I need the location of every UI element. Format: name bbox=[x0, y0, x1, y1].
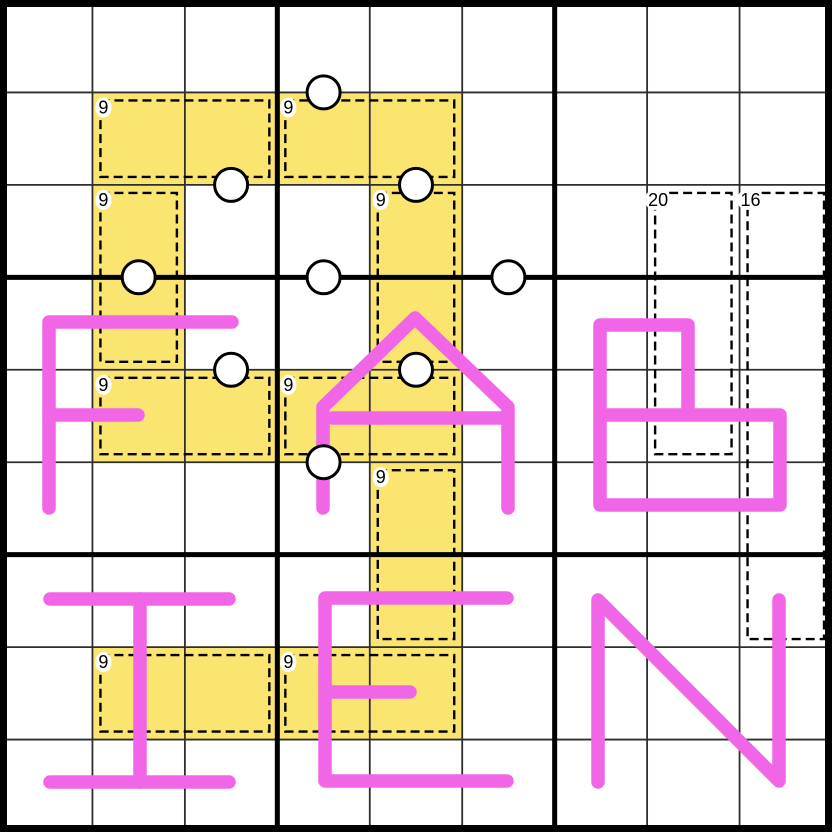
cage-sum-label: 9 bbox=[98, 97, 108, 117]
puzzle-board[interactable]: 9999999992016 bbox=[0, 0, 832, 832]
white-dot-r4c5-r5c5 bbox=[400, 353, 433, 386]
white-dot-r2c3-r3c3 bbox=[215, 168, 248, 201]
white-dot-r1c4-r2c4 bbox=[307, 76, 340, 109]
cell-r8c3[interactable] bbox=[185, 647, 277, 739]
cage-sum-label: 20 bbox=[648, 190, 668, 210]
cage-sum-label: 9 bbox=[98, 190, 108, 210]
white-dot-r3c4-r4c4 bbox=[307, 261, 340, 294]
cage-sum-label: 16 bbox=[741, 190, 761, 210]
puzzle-page: 9999999992016 bbox=[0, 0, 832, 832]
white-dot-r4c3-r5c3 bbox=[215, 353, 248, 386]
cage-sum-label: 9 bbox=[283, 97, 293, 117]
cage-sum-label: 9 bbox=[283, 652, 293, 672]
white-dot-r3c6-r4c6 bbox=[492, 261, 525, 294]
cage-sum-label: 9 bbox=[376, 467, 386, 487]
cage-sum-label: 9 bbox=[98, 375, 108, 395]
cage-sum-label: 9 bbox=[283, 375, 293, 395]
cage-sum-label: 9 bbox=[376, 190, 386, 210]
white-dot-r2c5-r3c5 bbox=[400, 168, 433, 201]
white-dot-r3c2-r4c2 bbox=[122, 261, 155, 294]
cage-sum-label: 9 bbox=[98, 652, 108, 672]
white-dot-r5c4-r6c4 bbox=[307, 446, 340, 479]
